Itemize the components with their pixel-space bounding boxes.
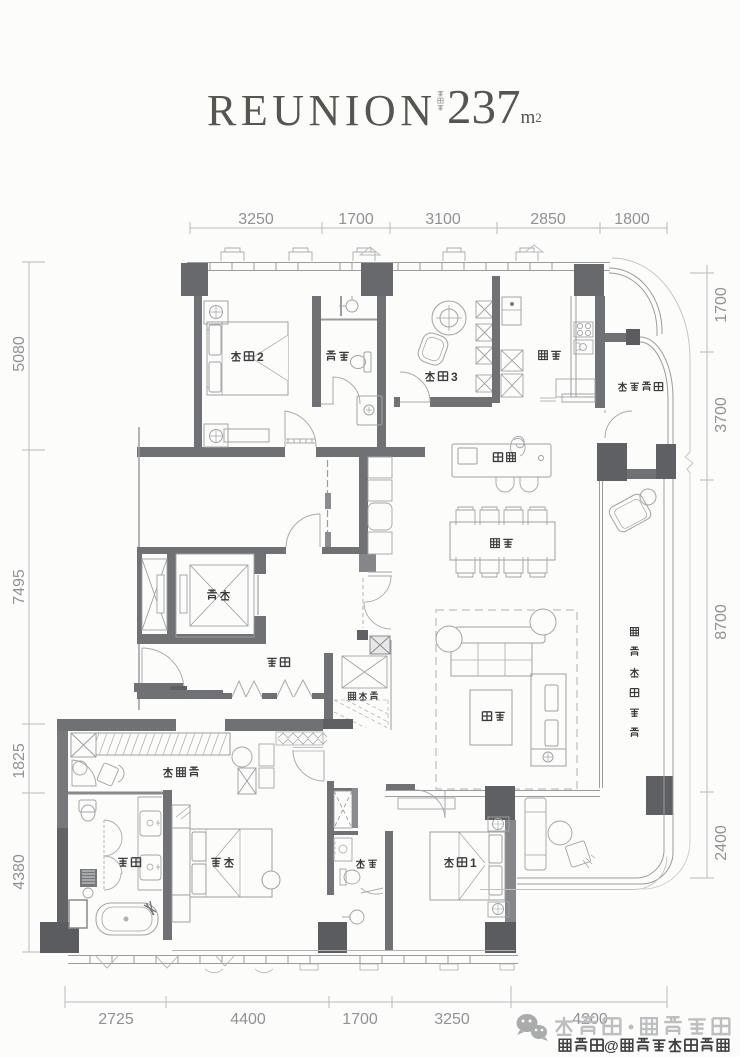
svg-text:3: 3	[451, 370, 458, 384]
svg-text:4400: 4400	[230, 1011, 266, 1028]
svg-text:237m2: 237m2	[447, 79, 542, 134]
svg-text:1700: 1700	[338, 211, 374, 228]
svg-text:3250: 3250	[434, 1011, 470, 1028]
svg-text:8700: 8700	[713, 604, 730, 640]
svg-text:4380: 4380	[11, 854, 28, 890]
svg-text:1825: 1825	[11, 743, 28, 779]
svg-text:7495: 7495	[11, 569, 28, 605]
svg-text:3250: 3250	[238, 211, 274, 228]
svg-text:REUNION: REUNION	[207, 86, 436, 135]
svg-text:1800: 1800	[614, 211, 650, 228]
svg-text:1700: 1700	[713, 287, 730, 323]
svg-text:2725: 2725	[98, 1011, 134, 1028]
svg-text:1: 1	[470, 856, 477, 870]
svg-text:2400: 2400	[713, 825, 730, 861]
svg-text:2850: 2850	[530, 211, 566, 228]
svg-text:3100: 3100	[425, 211, 461, 228]
svg-text:1700: 1700	[342, 1011, 378, 1028]
svg-text:@: @	[604, 1038, 619, 1055]
svg-text:2: 2	[257, 350, 264, 364]
svg-text:3700: 3700	[713, 397, 730, 433]
svg-text:5080: 5080	[11, 336, 28, 372]
